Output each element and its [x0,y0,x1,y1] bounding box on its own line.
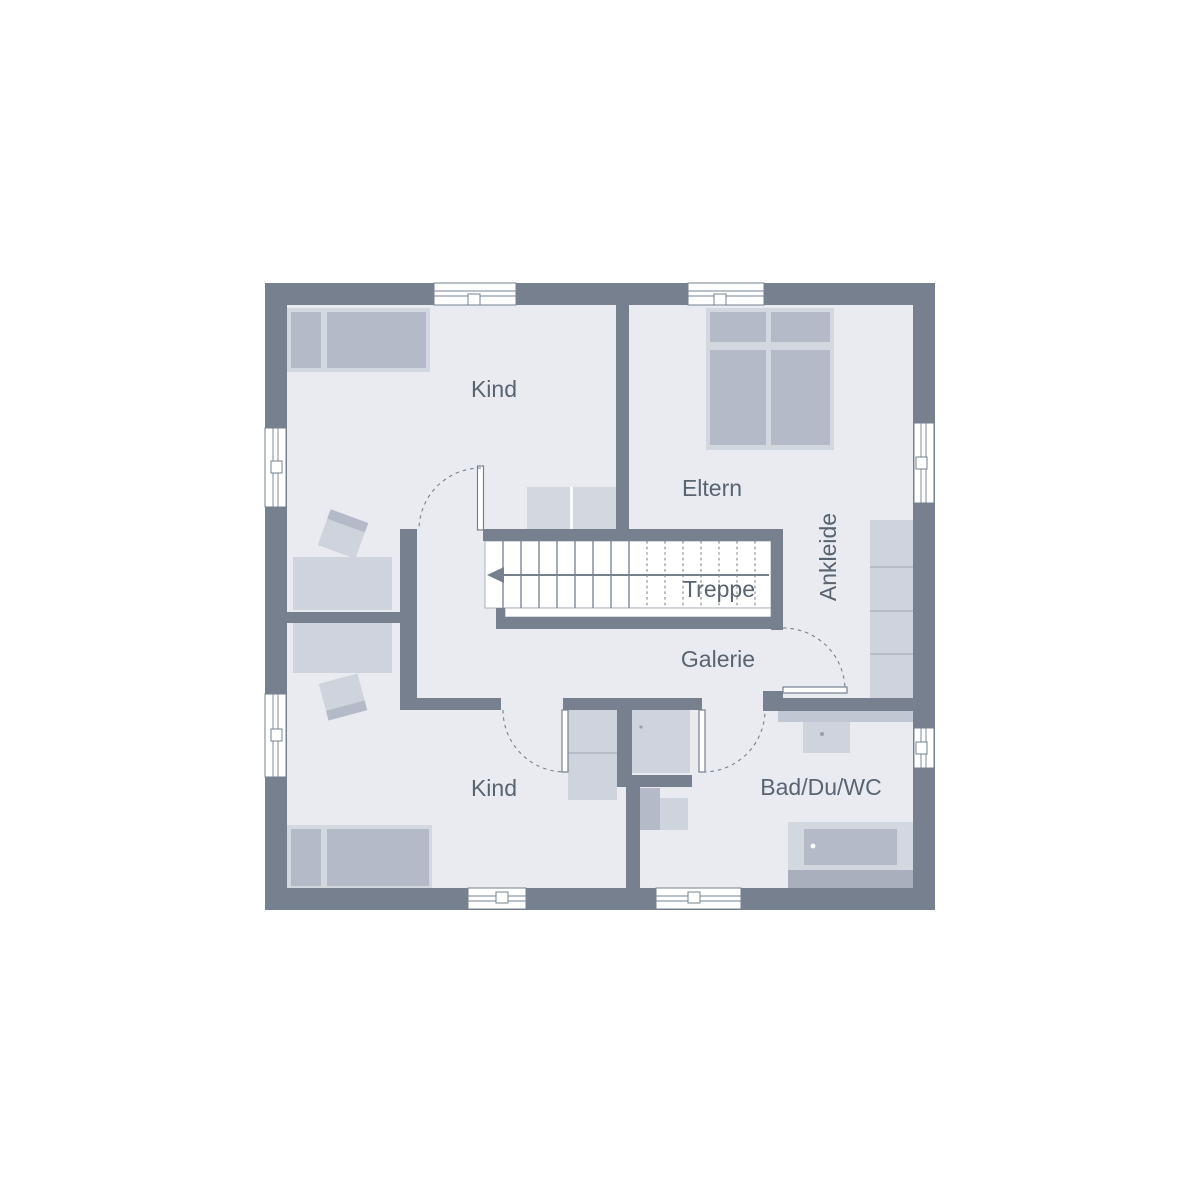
wall-hall-bottom-left [400,698,501,710]
wall-stair-right [771,529,783,630]
window-right-2 [914,728,934,768]
wall-kind-eltern [616,305,629,541]
wall-outer-top [265,283,935,305]
bath-counter [778,711,913,722]
desk-kind-top [293,557,392,610]
wall-stair-bottom [496,617,783,629]
bed-double-eltern [706,308,834,450]
wall-bath-stub [763,691,783,698]
bed-single-kind-top [287,308,430,372]
window-bottom-1 [468,888,526,909]
wall-wc-horizontal [617,775,692,787]
wall-between-kind-rooms [287,612,400,623]
room-label-ankleide: Ankleide [815,513,841,601]
window-left-2 [265,694,286,777]
wall-outer-right [913,283,935,910]
floorplan-drawing: Kind Eltern Ankleide Treppe Galerie Kind… [0,0,1200,1200]
wall-stair-top [483,529,783,541]
room-label-kind-bottom: Kind [471,775,517,801]
wardrobe-ankleide [870,520,913,698]
window-top-2 [688,283,764,305]
room-label-treppe: Treppe [683,576,755,602]
window-left-1 [265,428,286,507]
wall-wc-vertical [626,787,640,888]
floorplan-page: Kind Eltern Ankleide Treppe Galerie Kind… [0,0,1200,1200]
closet-knob [639,725,642,728]
wall-hall-bottom-right [563,698,702,710]
room-label-galerie: Galerie [681,646,755,672]
wall-outer-left [265,283,287,910]
room-label-bad: Bad/Du/WC [760,774,881,800]
washbasin-vanity [803,722,850,753]
window-top-1 [434,283,516,305]
wall-hall-vertical [400,529,417,710]
desk-kind-bottom [293,622,392,673]
room-label-kind-top: Kind [471,376,517,402]
room-label-eltern: Eltern [682,475,742,501]
wall-bath-top [763,698,913,711]
window-bottom-2 [656,888,741,909]
wall-outer-bottom [265,888,935,910]
sideboard-kind-top [527,487,617,529]
bed-single-kind-bottom [287,825,432,890]
bathtub [788,822,913,888]
closet-bath [632,710,690,773]
wardrobe-kind-bottom [568,710,617,800]
window-right-1 [914,423,934,503]
stair-landing-strip [505,608,771,617]
wall-stair-stub [496,608,505,629]
